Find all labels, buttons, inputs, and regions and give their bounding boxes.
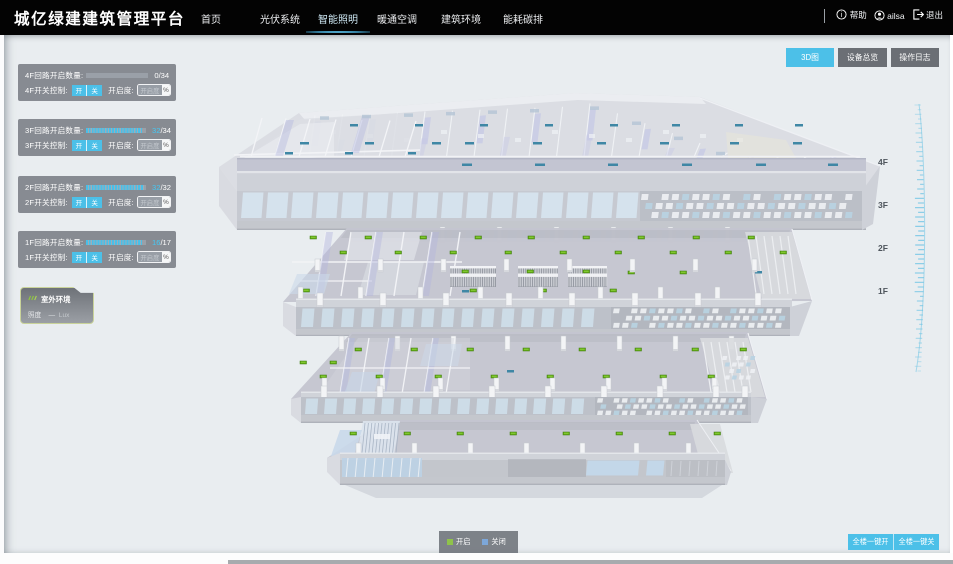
svg-text:i: i [841, 12, 843, 19]
